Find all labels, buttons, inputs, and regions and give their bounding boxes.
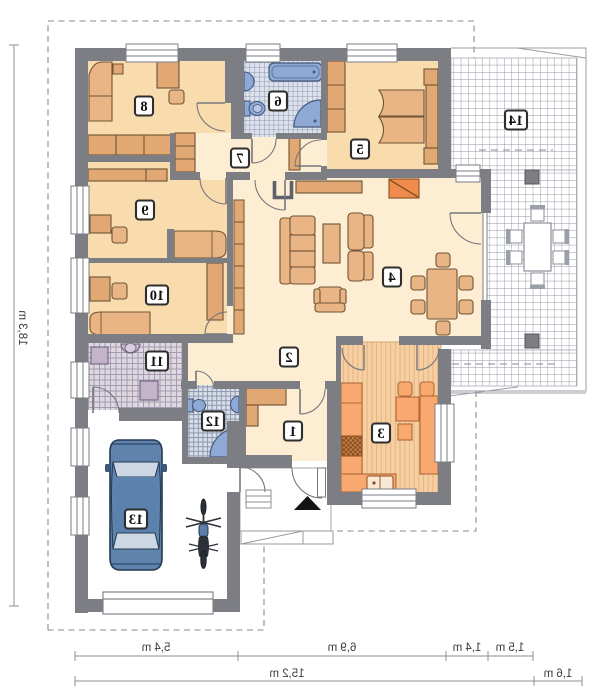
svg-text:1: 1 xyxy=(289,424,296,440)
svg-text:6,9 m: 6,9 m xyxy=(328,642,357,654)
svg-text:15,2 m: 15,2 m xyxy=(269,668,304,680)
svg-text:8: 8 xyxy=(140,99,147,115)
svg-text:5: 5 xyxy=(356,142,363,158)
svg-text:14: 14 xyxy=(509,113,524,129)
svg-text:7: 7 xyxy=(236,151,243,167)
svg-text:2: 2 xyxy=(285,350,292,366)
svg-text:13: 13 xyxy=(129,512,144,528)
svg-text:3: 3 xyxy=(377,426,384,442)
svg-text:11: 11 xyxy=(150,354,164,370)
svg-text:12: 12 xyxy=(206,414,221,430)
svg-text:10: 10 xyxy=(150,288,165,304)
svg-text:1,5 m: 1,5 m xyxy=(496,642,525,654)
svg-text:9: 9 xyxy=(141,203,148,219)
svg-text:1,6 m: 1,6 m xyxy=(544,668,573,680)
svg-text:18,3 m: 18,3 m xyxy=(16,310,28,345)
svg-text:5,4 m: 5,4 m xyxy=(142,642,171,654)
svg-text:1,4 m: 1,4 m xyxy=(453,642,482,654)
svg-text:4: 4 xyxy=(388,270,395,286)
svg-text:6: 6 xyxy=(274,94,281,110)
